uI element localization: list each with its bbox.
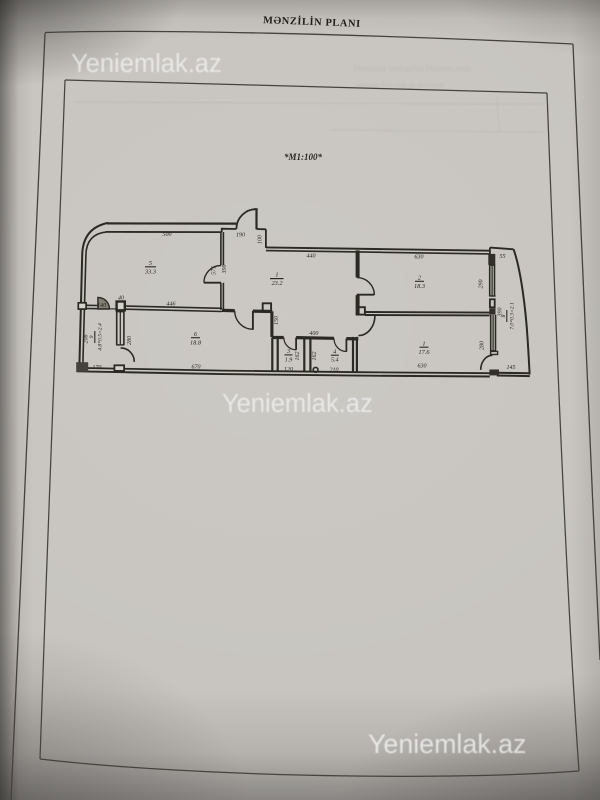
svg-text:162: 162 — [295, 352, 301, 361]
svg-text:140: 140 — [97, 302, 106, 309]
svg-text:8: 8 — [501, 314, 507, 317]
svg-text:210: 210 — [330, 367, 339, 373]
svg-text:55: 55 — [500, 254, 506, 260]
svg-text:190: 190 — [236, 233, 245, 239]
svg-text:Mənzilin yerləşdiyi binanın əs: Mənzilin yerləşdiyi binanın əsas — [354, 63, 471, 73]
svg-text:Yeniemlak.az: Yeniemlak.az — [368, 729, 526, 759]
svg-text:göstəriciləri cədvəli məlumat: göstəriciləri cədvəli məlumat — [356, 80, 444, 89]
svg-text:170: 170 — [92, 365, 101, 371]
svg-text:9: 9 — [89, 335, 95, 338]
svg-text:400: 400 — [309, 330, 318, 337]
svg-text:500: 500 — [163, 232, 172, 238]
svg-text:4: 4 — [333, 349, 336, 356]
svg-text:2: 2 — [418, 275, 422, 282]
svg-text:390: 390 — [222, 265, 228, 275]
svg-text:18.8: 18.8 — [190, 339, 202, 346]
svg-text:290: 290 — [479, 280, 485, 289]
svg-text:*M1:100*: *M1:100* — [284, 152, 322, 162]
svg-text:5: 5 — [149, 260, 152, 267]
svg-text:4.8*0.5=2.4: 4.8*0.5=2.4 — [97, 323, 103, 351]
svg-text:7.0*0.3=2.1: 7.0*0.3=2.1 — [509, 302, 515, 330]
svg-text:120: 120 — [284, 367, 293, 373]
svg-text:670: 670 — [192, 365, 201, 371]
svg-text:17.6: 17.6 — [418, 349, 430, 356]
svg-text:MƏNZİLİN PLANI: MƏNZİLİN PLANI — [263, 14, 361, 30]
svg-text:23.2: 23.2 — [271, 280, 283, 287]
svg-text:280: 280 — [127, 336, 133, 345]
svg-text:150: 150 — [274, 316, 280, 325]
svg-text:145: 145 — [507, 364, 516, 371]
svg-text:Yeniemlak.az: Yeniemlak.az — [71, 50, 222, 78]
svg-text:162: 162 — [312, 352, 318, 361]
svg-text:446: 446 — [167, 300, 176, 307]
svg-text:5.4: 5.4 — [331, 357, 339, 364]
svg-text:40: 40 — [118, 295, 124, 302]
svg-text:3: 3 — [286, 349, 290, 355]
svg-text:1.9: 1.9 — [285, 357, 293, 363]
svg-text:33.3: 33.3 — [144, 269, 156, 276]
svg-text:6: 6 — [194, 331, 198, 338]
svg-text:630: 630 — [415, 255, 424, 261]
svg-text:1: 1 — [422, 340, 425, 347]
svg-text:630: 630 — [418, 364, 427, 370]
svg-text:575: 575 — [212, 266, 218, 275]
svg-text:280: 280 — [480, 341, 486, 350]
svg-text:1: 1 — [275, 272, 278, 279]
svg-text:18.3: 18.3 — [414, 283, 425, 290]
svg-text:100: 100 — [258, 235, 264, 244]
svg-text:440: 440 — [307, 253, 316, 260]
svg-text:Yeniemlak.az: Yeniemlak.az — [222, 390, 373, 418]
